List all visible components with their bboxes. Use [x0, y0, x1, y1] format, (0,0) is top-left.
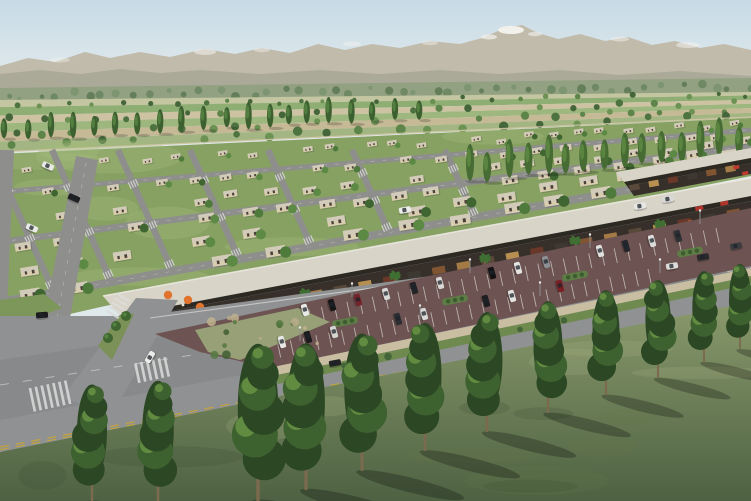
snow-cap — [676, 42, 700, 48]
treeline-tree — [7, 94, 12, 99]
treeline-tree — [332, 86, 340, 94]
treeline-tree — [95, 91, 103, 99]
yard-tree — [226, 153, 232, 159]
field-tree — [374, 99, 379, 104]
yard-tree — [466, 197, 476, 207]
yard-tree — [709, 128, 715, 134]
treeline-tree — [70, 87, 78, 95]
field-tree — [277, 102, 281, 106]
yard-tree — [254, 209, 263, 218]
field-tree — [204, 100, 209, 105]
treeline-tree — [195, 86, 203, 94]
yard-tree — [210, 215, 219, 224]
field-tree — [683, 112, 691, 120]
field-tree — [233, 131, 240, 138]
yard-tree — [602, 130, 608, 136]
field-tree — [67, 101, 72, 106]
snow-cap — [498, 26, 524, 34]
field-tree — [657, 110, 662, 115]
treeline-tree — [283, 86, 289, 92]
field-tree — [575, 94, 581, 100]
treeline-tree — [658, 82, 664, 88]
verge-bush — [561, 317, 568, 324]
field-tree — [675, 103, 681, 109]
field-tree — [121, 100, 126, 105]
light-pole — [419, 304, 421, 306]
field-tree — [320, 99, 324, 103]
verge-bush — [384, 353, 392, 361]
field-tree — [518, 97, 523, 102]
treeline-tree — [294, 86, 302, 94]
yard-tree — [205, 200, 213, 208]
snow-cap — [254, 48, 270, 52]
yard-tree — [280, 246, 291, 257]
light-pole — [589, 233, 591, 235]
field-tree — [89, 102, 93, 106]
field-tree — [185, 110, 190, 115]
treeline-tree — [713, 84, 722, 93]
yard-tree — [256, 174, 263, 181]
treeline-tree — [526, 87, 532, 93]
field-tree — [717, 92, 721, 96]
median-tree — [111, 321, 121, 331]
field-tree — [354, 126, 362, 134]
yard-tree — [421, 207, 431, 217]
field-tree — [628, 109, 635, 116]
yard-tree — [365, 199, 374, 208]
treeline-tree — [577, 84, 586, 93]
field-tree — [65, 117, 71, 123]
median-tree — [103, 333, 113, 343]
treeline-tree — [40, 94, 45, 99]
field-tree — [490, 98, 495, 103]
field-tree — [430, 99, 436, 105]
light-pole — [351, 282, 353, 284]
treeline-tree — [682, 82, 687, 87]
yard-tree — [322, 167, 329, 174]
field-tree — [217, 110, 224, 117]
snow-cap — [343, 42, 361, 47]
field-tree — [38, 131, 46, 139]
yard-tree — [179, 156, 185, 162]
field-tree — [551, 113, 560, 122]
field-tree — [8, 141, 16, 149]
treeline-tree — [435, 87, 443, 95]
yard-tree — [226, 255, 237, 266]
aerial-development-render — [0, 0, 751, 501]
yard-tree — [165, 181, 172, 188]
light-pole — [299, 326, 301, 328]
yard-tree — [605, 188, 616, 199]
field-tree — [293, 126, 302, 135]
yard-tree — [288, 204, 297, 213]
yard-tree — [358, 229, 369, 240]
snow-cap — [50, 58, 70, 63]
yard-tree — [582, 131, 588, 137]
snow-cap — [528, 32, 542, 36]
yard-tree — [354, 166, 361, 173]
treeline-tree — [130, 92, 137, 99]
treeline-tree — [410, 90, 415, 95]
field-tree — [645, 113, 652, 120]
treeline-tree — [218, 86, 226, 94]
field-tree — [687, 94, 693, 100]
field-tree — [651, 100, 658, 107]
treeline-tree — [511, 85, 516, 90]
field-tree — [435, 105, 442, 112]
yard-tree — [557, 134, 563, 140]
field-tree — [150, 124, 157, 131]
field-tree — [521, 112, 529, 120]
treeline-tree — [698, 80, 707, 89]
treeline-tree — [724, 86, 730, 92]
field-tree — [580, 112, 585, 117]
verge-bush — [517, 327, 523, 333]
field-tree — [15, 102, 21, 108]
treeline-tree — [400, 88, 408, 96]
field-tree — [5, 113, 13, 121]
treeline-tree — [493, 84, 500, 91]
patio-umbrella — [184, 296, 192, 304]
field-tree — [543, 94, 548, 99]
field-tree — [148, 101, 153, 106]
treeline-tree — [112, 89, 120, 97]
render-canvas — [0, 0, 751, 501]
patio-table — [182, 304, 185, 307]
yard-tree — [395, 142, 401, 148]
field-tree — [13, 129, 20, 136]
field-tree — [322, 129, 330, 137]
yard-tree — [256, 229, 266, 239]
field-tree — [607, 109, 613, 115]
snow-cap — [194, 49, 216, 55]
treeline-tree — [146, 90, 154, 98]
field-tree — [279, 111, 286, 118]
yard-tree — [51, 190, 58, 197]
snow-cap — [611, 37, 629, 42]
field-tree — [37, 104, 42, 109]
patio-umbrella — [164, 291, 172, 299]
yard-tree — [313, 188, 321, 196]
median-tree — [121, 311, 131, 321]
field-tree — [123, 116, 129, 122]
yard-tree — [409, 158, 416, 165]
treeline-tree — [368, 86, 372, 90]
treeline-tree — [479, 88, 484, 93]
treeline-tree — [181, 91, 187, 97]
field-tree — [630, 92, 636, 98]
yard-tree — [140, 224, 149, 233]
yard-tree — [669, 150, 677, 158]
treeline-tree — [641, 84, 648, 91]
treeline-tree — [464, 84, 472, 92]
treeline-tree — [319, 88, 327, 96]
yard-tree — [205, 237, 215, 247]
field-tree — [460, 95, 465, 100]
field-tree — [175, 101, 181, 107]
car — [35, 312, 49, 321]
field-tree — [537, 104, 543, 110]
field-tree — [570, 105, 576, 111]
yard-tree — [333, 146, 339, 152]
light-pole — [469, 258, 471, 260]
field-tree — [299, 99, 303, 103]
yard-tree — [558, 196, 569, 207]
treeline-tree — [592, 84, 599, 91]
field-tree — [594, 104, 600, 110]
yard-tree — [82, 283, 93, 294]
field-tree — [225, 99, 229, 103]
light-pole — [539, 281, 541, 283]
yard-tree — [413, 220, 424, 231]
light-pole — [659, 258, 661, 260]
snow-cap — [422, 41, 438, 45]
treeline-tree — [559, 86, 567, 94]
field-tree — [476, 115, 482, 121]
snow-cap — [481, 35, 497, 40]
yard-tree — [351, 183, 359, 191]
yard-tree — [532, 134, 538, 140]
yard-tree — [519, 203, 530, 214]
field-tree — [41, 115, 48, 122]
treeline-tree — [167, 88, 172, 93]
field-tree — [314, 109, 320, 115]
field-tree — [731, 98, 737, 104]
treeline-tree — [385, 87, 393, 95]
field-tree — [464, 104, 472, 112]
field-tree — [616, 99, 623, 106]
field-tree — [410, 107, 416, 113]
treeline-tree — [547, 85, 556, 94]
field-tree — [743, 95, 747, 99]
yard-tree — [199, 179, 206, 186]
light-pole — [699, 209, 701, 211]
treeline-tree — [262, 88, 269, 95]
